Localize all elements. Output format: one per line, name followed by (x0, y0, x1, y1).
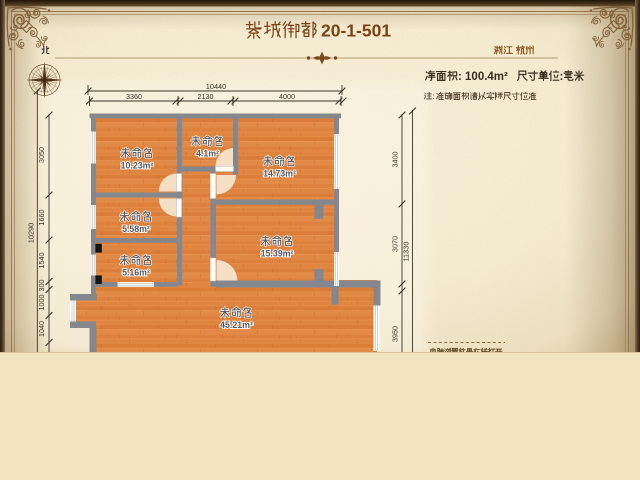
svg-text:5.16m²: 5.16m² (122, 268, 150, 278)
svg-text:4.1m²: 4.1m² (196, 149, 219, 159)
svg-text:11330: 11330 (401, 241, 410, 261)
svg-text:3400: 3400 (390, 152, 399, 168)
svg-text:3050: 3050 (37, 147, 46, 163)
svg-text::: : (433, 92, 435, 101)
svg-text:10290: 10290 (27, 223, 36, 244)
svg-text:15.39m²: 15.39m² (261, 249, 294, 259)
svg-text:3950: 3950 (390, 326, 399, 342)
svg-text:10440: 10440 (206, 82, 227, 91)
svg-text:: 100.4m²: : 100.4m² (458, 71, 508, 83)
svg-text:1040: 1040 (37, 321, 46, 337)
svg-text:5.58m²: 5.58m² (122, 224, 150, 234)
svg-text:3070: 3070 (390, 236, 399, 252)
svg-text:1540: 1540 (37, 253, 46, 269)
svg-text:20-1-501: 20-1-501 (321, 21, 391, 41)
svg-text:2130: 2130 (198, 92, 214, 101)
svg-text:45.21m²: 45.21m² (220, 320, 253, 330)
svg-text:3360: 3360 (126, 92, 142, 101)
svg-text:300: 300 (37, 280, 46, 292)
svg-text:14.73m²: 14.73m² (263, 169, 296, 179)
svg-text:4000: 4000 (279, 92, 295, 101)
svg-text::: : (560, 71, 564, 83)
svg-text:1660: 1660 (37, 210, 46, 226)
svg-text:1000: 1000 (37, 295, 46, 311)
svg-text:10.23m²: 10.23m² (121, 161, 154, 171)
